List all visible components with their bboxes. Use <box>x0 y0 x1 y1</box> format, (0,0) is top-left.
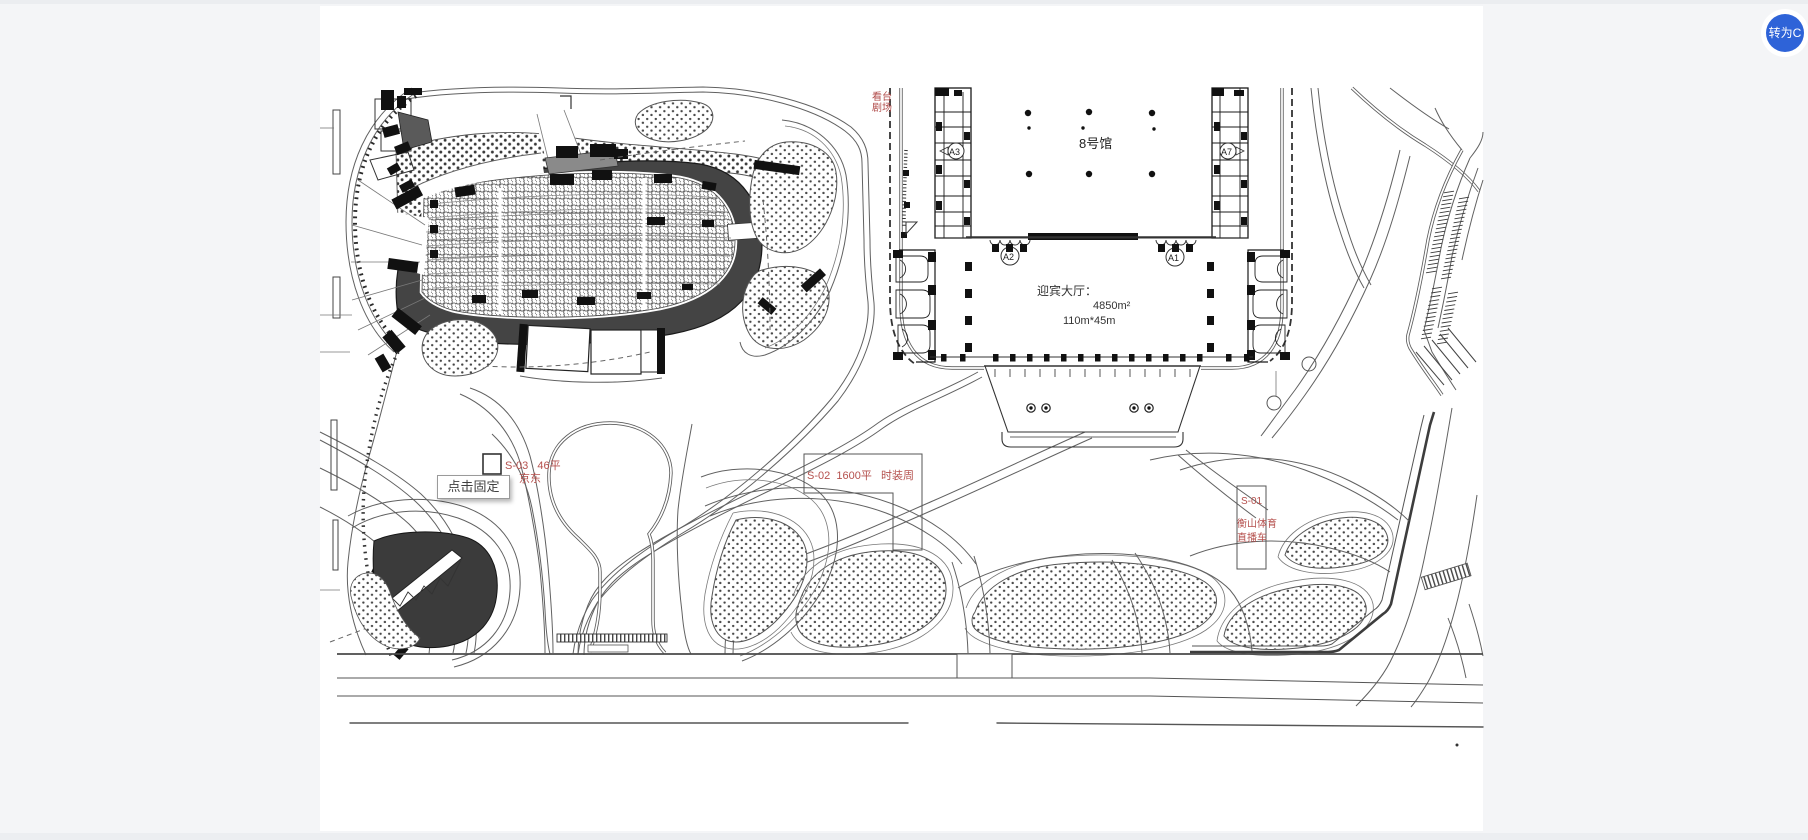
svg-text:S-02 1600平 时装周: S-02 1600平 时装周 <box>807 469 914 482</box>
svg-text:A3: A3 <box>949 147 960 157</box>
svg-text:京东: 京东 <box>519 471 541 485</box>
svg-text:A7: A7 <box>1221 147 1232 157</box>
svg-text:衡山体育: 衡山体育 <box>1237 517 1277 530</box>
svg-text:110m*45m: 110m*45m <box>1063 315 1115 327</box>
svg-text:S-01: S-01 <box>1241 496 1263 507</box>
svg-text:直播车: 直播车 <box>1237 531 1267 544</box>
svg-text:4850m²: 4850m² <box>1093 300 1131 312</box>
svg-text:A1: A1 <box>1168 253 1179 263</box>
svg-text:看台: 看台 <box>872 90 892 103</box>
svg-text:迎宾大厅：: 迎宾大厅： <box>1037 283 1097 298</box>
svg-text:8号馆: 8号馆 <box>1079 136 1112 151</box>
svg-text:A2: A2 <box>1003 252 1014 262</box>
svg-text:剧场: 剧场 <box>872 101 892 114</box>
svg-text:S-03 46平: S-03 46平 <box>505 460 561 472</box>
